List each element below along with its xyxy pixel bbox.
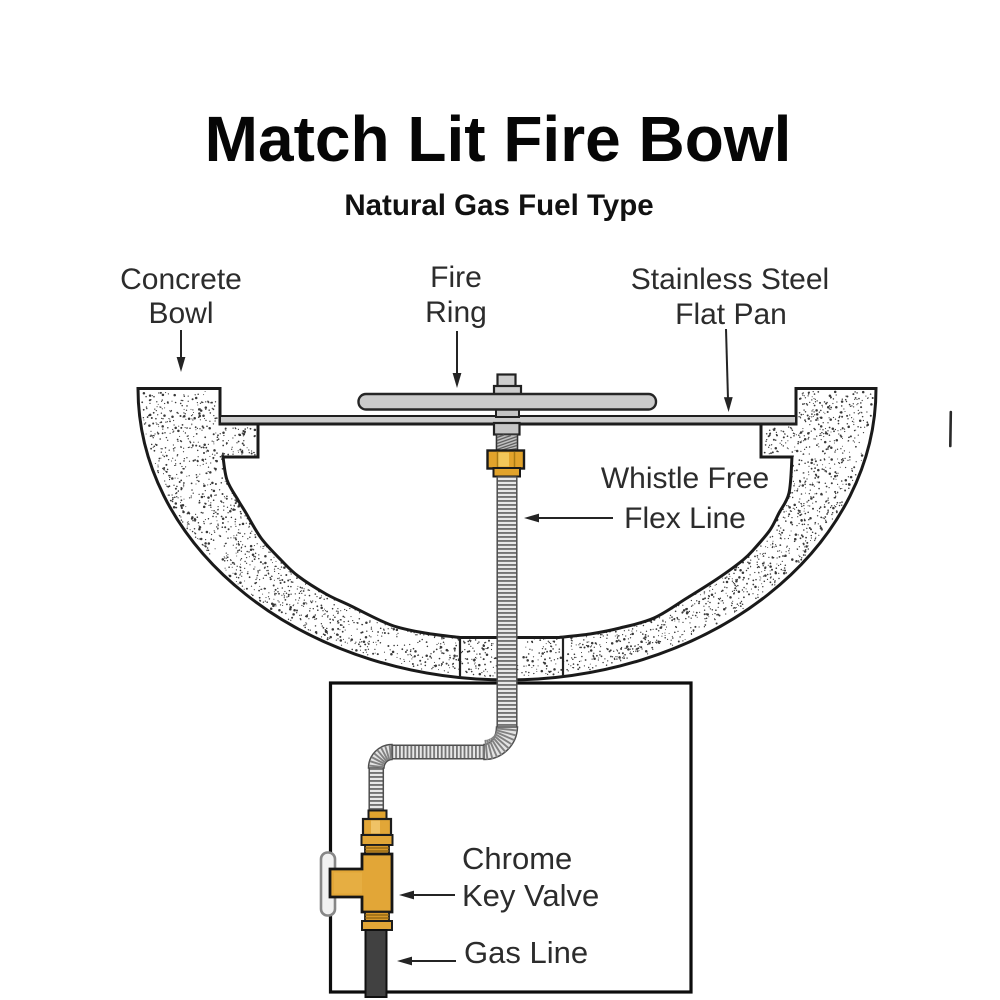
svg-text:Bowl: Bowl: [148, 297, 213, 330]
svg-text:Stainless Steel: Stainless Steel: [631, 263, 829, 296]
svg-text:Key Valve: Key Valve: [462, 878, 599, 913]
svg-text:Fire: Fire: [430, 261, 482, 294]
svg-text:Whistle Free: Whistle Free: [601, 462, 769, 495]
svg-text:Chrome: Chrome: [462, 841, 572, 876]
svg-text:Concrete: Concrete: [120, 263, 242, 296]
svg-text:Gas Line: Gas Line: [464, 935, 588, 970]
svg-text:Ring: Ring: [425, 296, 487, 329]
svg-text:Flat Pan: Flat Pan: [675, 298, 787, 331]
svg-text:Match Lit Fire Bowl: Match Lit Fire Bowl: [205, 103, 792, 175]
svg-text:Natural Gas Fuel Type: Natural Gas Fuel Type: [344, 189, 653, 222]
svg-text:Flex Line: Flex Line: [624, 502, 746, 535]
